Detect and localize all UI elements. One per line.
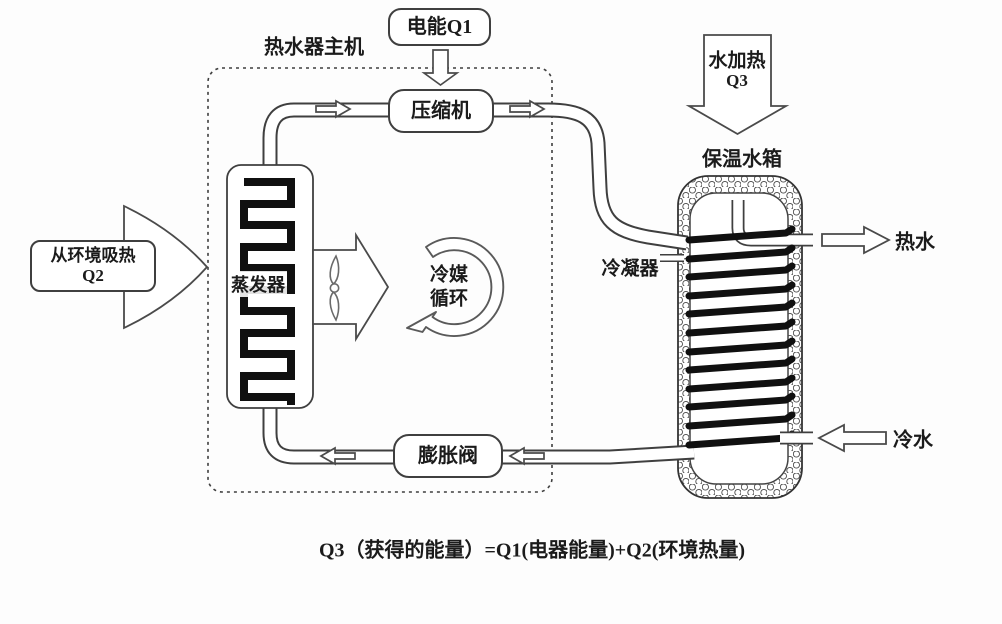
- hot-water-label: 热水: [895, 226, 935, 255]
- compressor-box: 压缩机: [388, 89, 494, 133]
- hot-water-arrow-icon: [822, 227, 889, 253]
- evaporator-label: 蒸发器: [229, 271, 287, 297]
- electric-energy-box: 电能Q1: [388, 8, 491, 46]
- electric-energy-arrow-icon: [424, 50, 457, 85]
- cold-water-label: 冷水: [893, 424, 933, 453]
- airflow-arrow-icon: [313, 235, 388, 339]
- compressor-label: 压缩机: [411, 100, 471, 123]
- water-heating-label-line1: 水加热: [708, 46, 765, 73]
- environment-heat-label-line1: 从环境吸热: [51, 246, 136, 266]
- environment-heat-label-line2: Q2: [82, 266, 104, 286]
- refrigerant-cycle-label-line2: 循环: [430, 284, 468, 311]
- expansion-valve-label: 膨胀阀: [418, 445, 478, 468]
- electric-energy-label: 电能Q1: [407, 16, 473, 39]
- cold-water-arrow-icon: [819, 425, 886, 451]
- heat-pump-water-heater-diagram: 电能Q1 压缩机 膨胀阀 从环境吸热 Q2 热水器主机 蒸发器 冷媒 循环 水加…: [0, 0, 1002, 624]
- main-unit-label: 热水器主机: [264, 31, 364, 60]
- environment-heat-box: 从环境吸热 Q2: [30, 240, 156, 292]
- tank-label: 保温水箱: [702, 143, 782, 172]
- expansion-valve-box: 膨胀阀: [393, 434, 503, 478]
- pipe-evaporator-to-compressor: [270, 110, 392, 172]
- energy-formula: Q3（获得的能量）=Q1(电器能量)+Q2(环境热量): [319, 534, 745, 563]
- diagram-lineart: [0, 0, 1002, 624]
- pipe-compressor-to-condenser: [490, 110, 687, 243]
- water-heating-label-line2: Q3: [726, 71, 748, 91]
- refrigerant-cycle-label-line1: 冷媒: [430, 260, 468, 287]
- condenser-label: 冷凝器: [601, 254, 658, 281]
- fan-icon: [330, 256, 339, 320]
- pipe-evaporator-to-compressor-inner: [270, 110, 392, 172]
